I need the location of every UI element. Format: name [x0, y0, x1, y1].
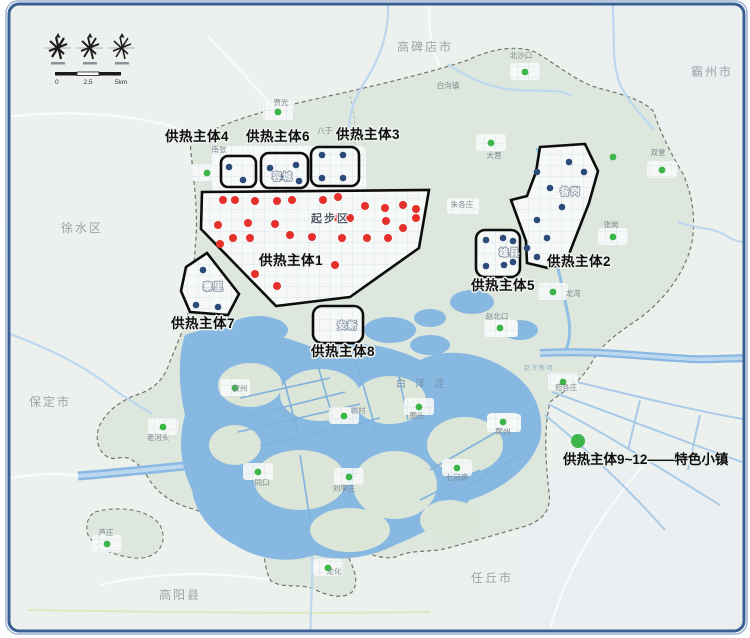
heat-source-dot-blue	[559, 204, 566, 211]
zone-4-outline	[221, 156, 256, 187]
heat-source-dot-red	[308, 233, 316, 241]
heat-source-dot-red	[399, 201, 407, 209]
heat-source-dot-red	[229, 234, 237, 242]
rose-caption-mark	[83, 62, 97, 65]
town-dot-green	[341, 413, 348, 420]
district-name-label: 昝岗	[560, 186, 581, 198]
town-dot-green	[416, 404, 423, 411]
town-label: 芦庄	[99, 527, 114, 537]
town-label: 同口	[255, 478, 270, 487]
town-label: 朱各庄	[451, 199, 474, 209]
heat-source-dot-blue	[226, 164, 233, 171]
heat-source-dot-blue	[483, 237, 490, 244]
heat-source-dot-blue	[534, 254, 541, 261]
town-dot-green	[454, 465, 461, 472]
district-name-label: 安新	[337, 320, 358, 332]
heat-source-dot-red	[334, 193, 342, 201]
heat-source-dot-red	[216, 240, 224, 248]
heat-source-dot-blue	[581, 169, 588, 176]
town-dot-green	[610, 154, 617, 161]
legend-town-dot	[571, 434, 585, 448]
neighbor-region-label: 保定市	[29, 394, 71, 409]
town-label: 龙化	[327, 566, 342, 576]
scale-tick-label: 0	[55, 79, 59, 86]
town-label: 端村	[351, 405, 366, 415]
heat-source-dot-blue	[510, 259, 517, 266]
map-svg: 北沙口白沟镇贾光八于南张大营双堂朱各庄张岗龙湾赵北口苟各庄鄚州圈头七间房安州老河…	[0, 0, 750, 638]
town-label: 苟各庄	[555, 382, 578, 392]
heat-source-dot-red	[331, 261, 339, 269]
heat-source-dot-red	[412, 205, 420, 213]
heat-source-dot-blue	[483, 263, 490, 270]
heat-source-dot-red	[412, 214, 420, 222]
heat-source-dot-red	[219, 196, 227, 204]
scale-tick-label: 5km	[115, 79, 127, 86]
heat-source-dot-blue	[534, 169, 541, 176]
heat-source-dot-red	[246, 234, 254, 242]
water-label: 赵王新河	[524, 364, 554, 372]
town-dot-green	[610, 234, 617, 241]
zone-label-2: 供热主体2	[546, 253, 611, 269]
district-name-label: 起步区	[310, 211, 350, 225]
zone-label-6: 供热主体6	[245, 128, 310, 144]
heat-source-dot-red	[399, 224, 407, 232]
heat-source-dot-red	[286, 231, 294, 239]
water-label: 白洋淀	[396, 377, 453, 390]
heat-source-dot-red	[384, 234, 392, 242]
town-label: 八于	[318, 126, 333, 135]
neighbor-region-label: 徐水区	[61, 220, 103, 235]
heat-source-dot-red	[381, 204, 389, 212]
heat-source-dot-red	[319, 196, 327, 204]
scale-bar	[55, 72, 121, 76]
heat-source-dot-red	[363, 234, 371, 242]
town-label: 张岗	[604, 220, 619, 229]
zone-3-outline	[311, 147, 359, 186]
heat-source-dot-red	[251, 270, 259, 278]
town-label: 贾光	[274, 97, 289, 107]
town-label: 龙湾	[566, 288, 581, 298]
heat-source-dot-blue	[500, 235, 507, 242]
scale-tick-label: 2.5	[83, 79, 92, 86]
town-label: 安州	[233, 383, 248, 393]
neighbor-region-label: 霸州市	[691, 64, 733, 79]
heat-source-dot-blue	[215, 304, 222, 311]
heat-source-dot-red	[273, 282, 281, 290]
district-name-label: 容城	[271, 171, 293, 183]
heat-source-dot-red	[231, 196, 239, 204]
heat-source-dot-red	[244, 219, 252, 227]
town-label: 老河头	[147, 432, 170, 442]
district-name-label: 雄县	[498, 247, 520, 259]
heat-source-dot-red	[288, 196, 296, 204]
town-dot-green	[104, 541, 111, 548]
heat-source-dot-blue	[240, 177, 247, 184]
town-dot-green	[522, 69, 529, 76]
heat-source-dot-blue	[547, 185, 554, 192]
town-dot-green	[160, 424, 167, 431]
heat-source-dot-blue	[296, 178, 303, 185]
heating-supply-map: 北沙口白沟镇贾光八于南张大营双堂朱各庄张岗龙湾赵北口苟各庄鄚州圈头七间房安州老河…	[0, 0, 750, 638]
heat-source-dot-blue	[544, 235, 551, 242]
neighbor-region-label: 任丘市	[471, 570, 513, 585]
town-label: 白沟镇	[437, 80, 460, 90]
town-label: 圈头	[410, 410, 425, 420]
town-dot-green	[346, 474, 353, 481]
zone-label-5: 供热主体5	[470, 277, 535, 293]
neighbor-region-label: 高碑店市	[397, 39, 453, 54]
heat-source-dot-blue	[267, 165, 274, 172]
heat-source-dot-blue	[534, 217, 541, 224]
town-dot-green	[204, 170, 211, 177]
town-label: 南张	[212, 144, 227, 154]
heat-source-dot-blue	[319, 152, 326, 159]
heat-source-dot-blue	[319, 175, 326, 182]
town-label: 双堂	[651, 147, 666, 157]
heat-source-dot-blue	[524, 245, 531, 252]
heat-source-dot-blue	[501, 262, 508, 269]
heat-source-dot-red	[361, 202, 369, 210]
zone-label-8: 供热主体8	[310, 343, 375, 359]
town-label: 北沙口	[510, 51, 533, 60]
town-label: 刘李庄	[333, 483, 356, 493]
town-dot-green	[500, 419, 507, 426]
neighbor-region-label: 高阳县	[159, 587, 201, 602]
heat-source-dot-blue	[340, 175, 347, 182]
town-label: 大营	[487, 150, 502, 160]
heat-source-dot-blue	[510, 238, 517, 245]
district-name-label: 寨里	[202, 281, 224, 293]
heat-source-dot-red	[338, 234, 346, 242]
zone-label-4: 供热主体4	[164, 128, 229, 144]
heat-source-dot-red	[382, 217, 390, 225]
town-dot-green	[275, 109, 282, 116]
heat-source-dot-blue	[200, 267, 207, 274]
heat-source-dot-blue	[293, 162, 300, 169]
legend-label: 供热主体9~12——特色小镇	[562, 451, 729, 467]
town-dot-green	[488, 140, 495, 147]
rose-caption-mark	[115, 62, 129, 65]
zone-label-3: 供热主体3	[335, 126, 400, 142]
town-dot-green	[255, 469, 262, 476]
heat-source-dot-red	[271, 220, 279, 228]
zone-label-1: 供热主体1	[258, 252, 323, 268]
rose-caption-mark	[51, 62, 65, 65]
town-dot-green	[659, 167, 666, 174]
town-dot-green	[550, 289, 557, 296]
town-label: 鄚州	[496, 426, 511, 436]
zone-label-7: 供热主体7	[170, 315, 235, 331]
heat-source-dot-red	[251, 197, 259, 205]
heat-source-dot-red	[214, 221, 222, 229]
town-dot-green	[497, 325, 504, 332]
heat-source-dot-blue	[566, 159, 573, 166]
heat-source-dot-blue	[193, 302, 200, 309]
town-label: 赵北口	[486, 311, 509, 321]
town-label: 七间房	[446, 472, 469, 482]
heat-source-dot-blue	[340, 152, 347, 159]
heat-source-dot-red	[273, 197, 281, 205]
